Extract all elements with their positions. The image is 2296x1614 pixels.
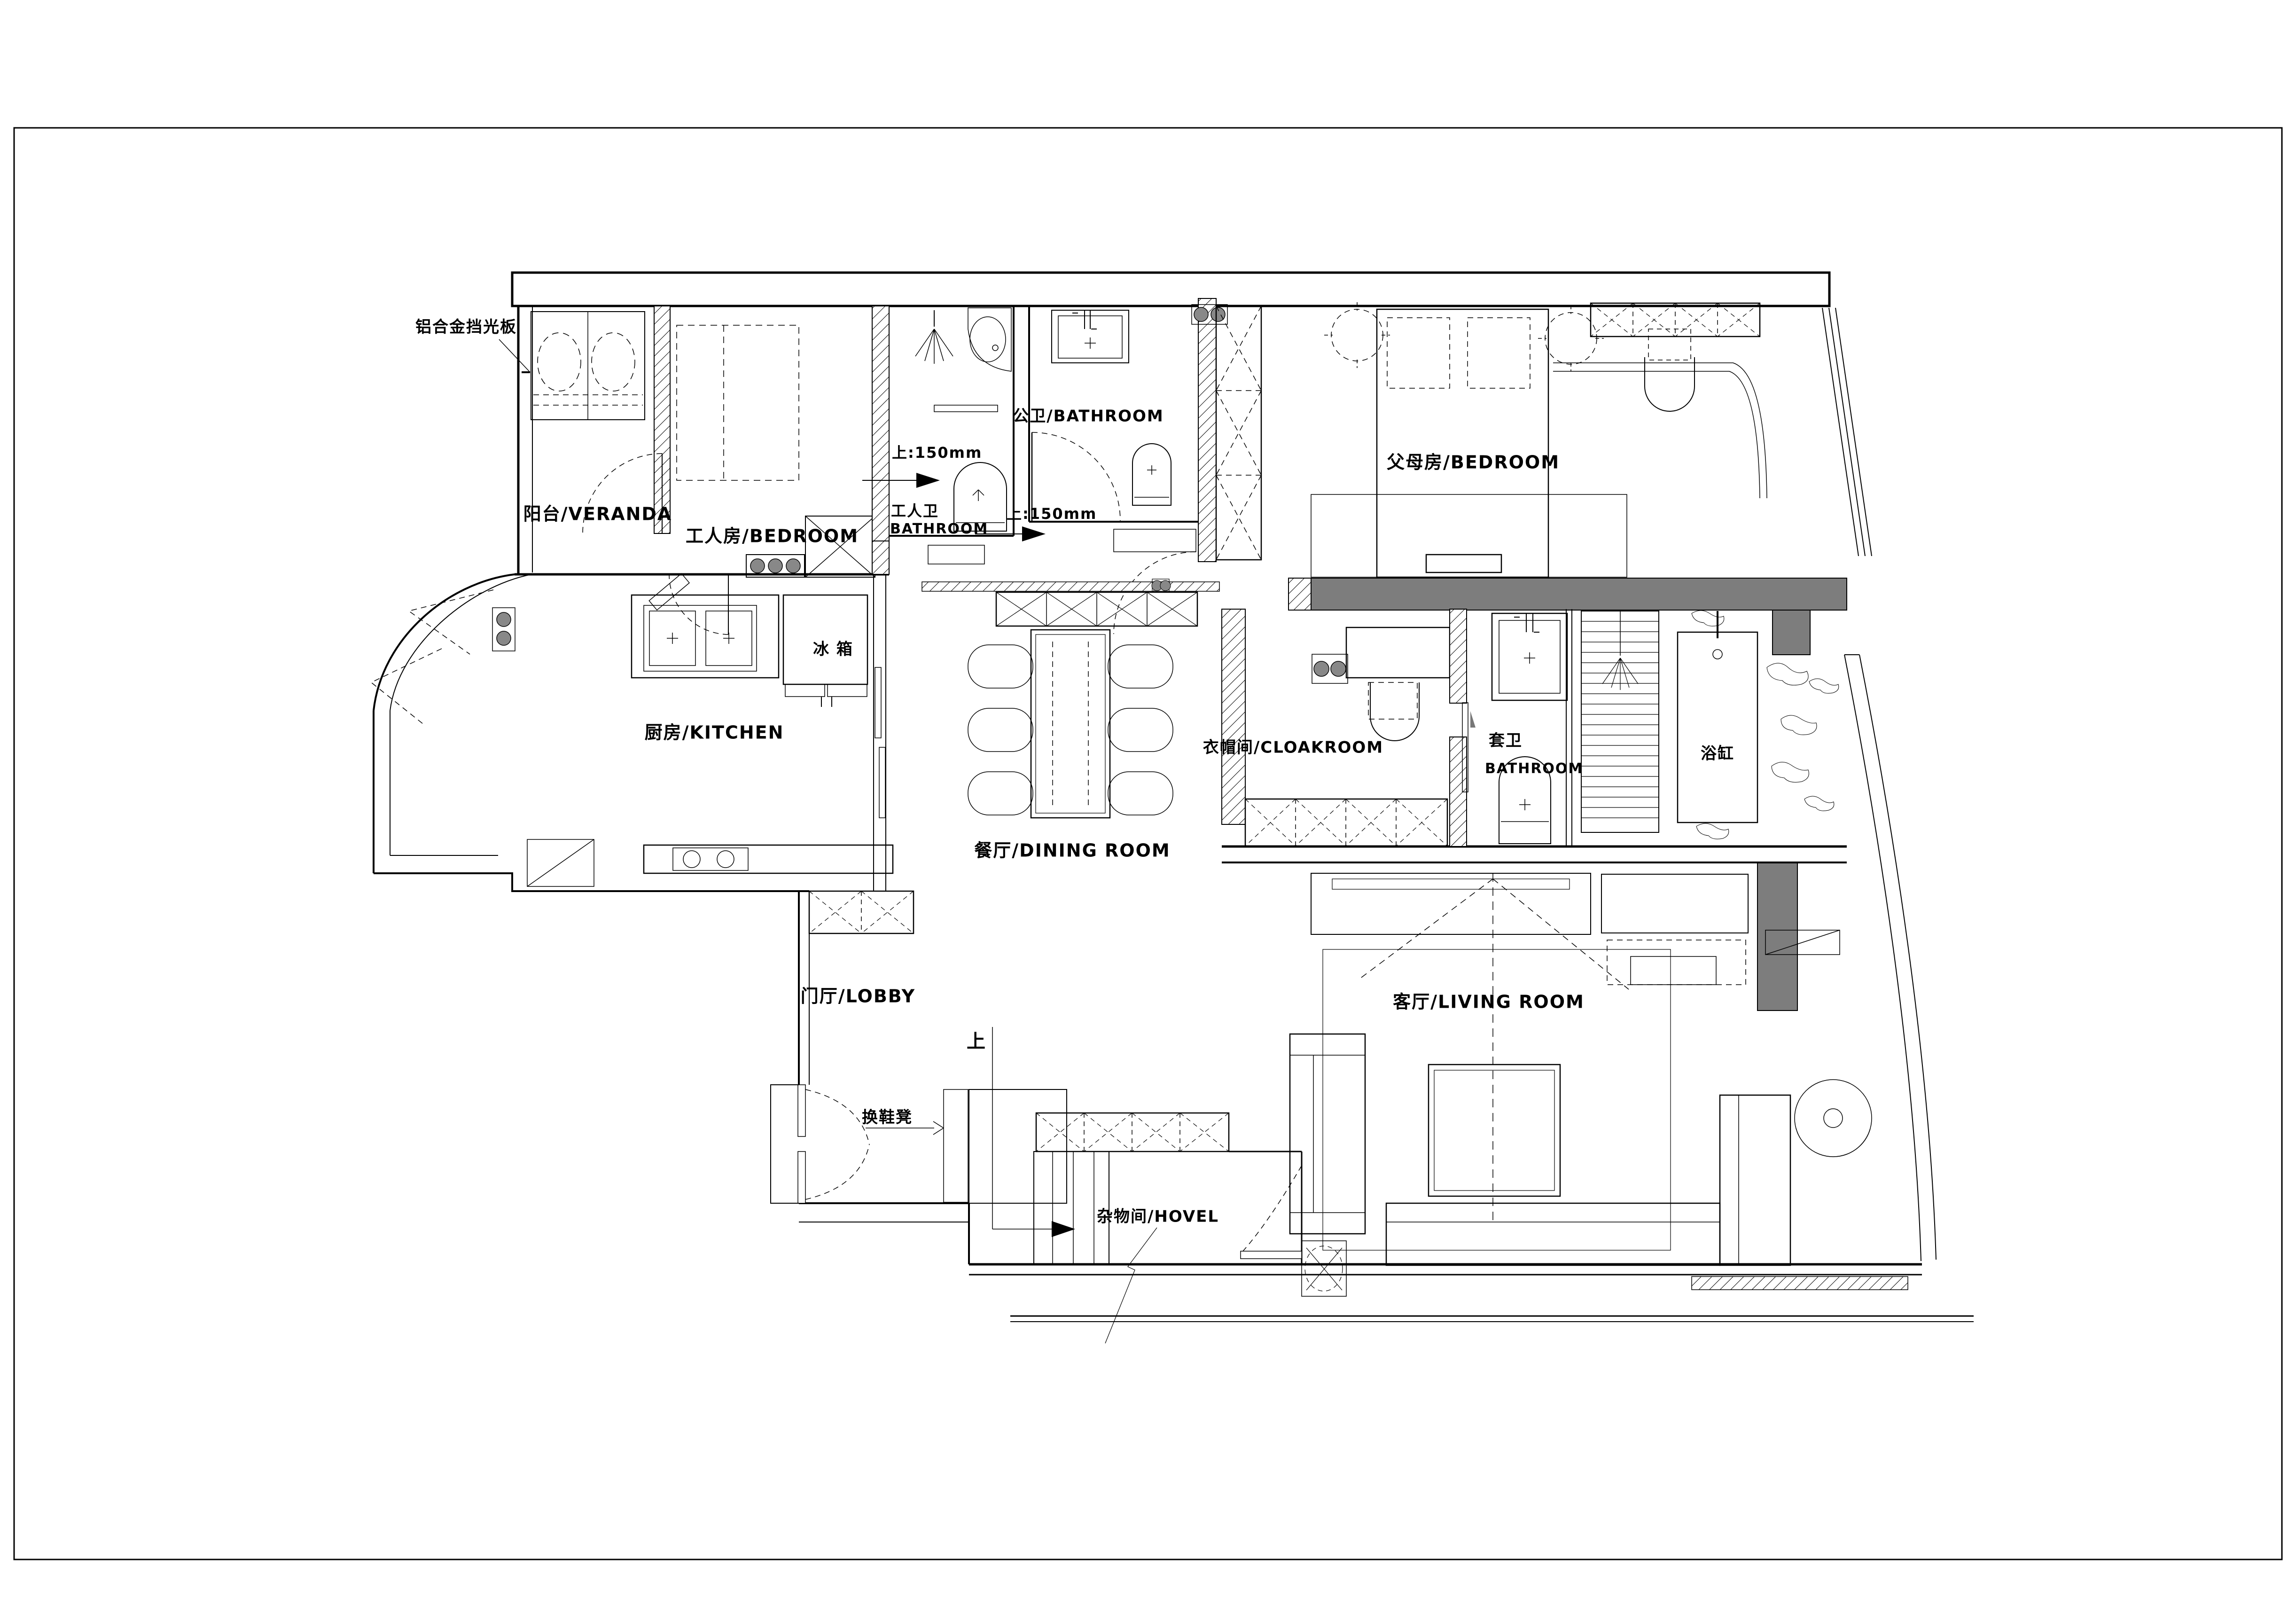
label-hovel: 杂物间/HOVEL (1097, 1204, 1219, 1227)
label-veranda: 阳台/VERANDA (523, 500, 672, 525)
floor-plan-sheet: 铝合金挡光板 阳台/VERANDA 工人房/BEDROOM 工人卫 BATHRO… (0, 0, 2296, 1614)
label-lobby: 门厅/LOBBY (801, 982, 915, 1008)
wardrobe-strip (1216, 306, 1261, 560)
label-public-bath: 公卫/BATHROOM (1013, 403, 1164, 426)
label-kitchen: 厨房/KITCHEN (645, 718, 784, 744)
worker-bedroom (515, 325, 889, 635)
label-worker-bedroom: 工人房/BEDROOM (686, 522, 859, 548)
parents-bedroom (1311, 302, 1767, 577)
outer-walls (374, 273, 1974, 1322)
label-step-up-a: 上:150mm (892, 441, 982, 462)
label-step-up-b: 上:150mm (1007, 502, 1097, 524)
label-bathtub: 浴缸 (1701, 741, 1734, 764)
label-dining: 餐厅/DINING ROOM (974, 836, 1170, 862)
label-sunshade: 铝合金挡光板 (415, 314, 517, 337)
label-cloakroom: 衣帽间/CLOAKROOM (1203, 735, 1383, 758)
label-shoe-bench: 换鞋凳 (862, 1105, 913, 1128)
corridor-cabinets (922, 579, 1219, 626)
label-suite-bath-en: BATHROOM (1485, 760, 1583, 777)
lobby-stairs-hovel (771, 891, 1302, 1343)
label-living: 客厅/LIVING ROOM (1393, 987, 1585, 1013)
plan-linework (0, 0, 2296, 1614)
annotation-arrows (862, 473, 1046, 1135)
label-worker-bath-en: BATHROOM (890, 521, 988, 537)
label-stairs-up: 上 (967, 1026, 986, 1053)
label-worker-bath-cn: 工人卫 (891, 499, 939, 521)
label-parents-bedroom: 父母房/BEDROOM (1387, 448, 1560, 474)
label-fridge: 冰 箱 (813, 636, 853, 659)
label-suite-bath-cn: 套卫 (1489, 728, 1523, 751)
dining-room (968, 630, 1173, 818)
